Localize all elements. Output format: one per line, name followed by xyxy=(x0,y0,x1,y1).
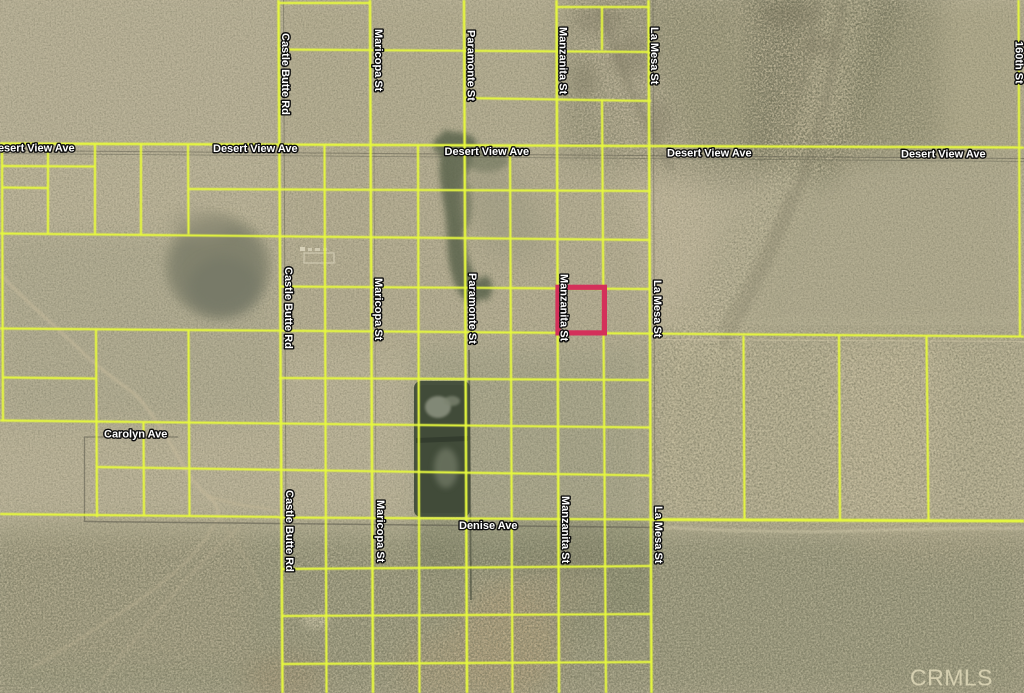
svg-text:Carolyn Ave: Carolyn Ave xyxy=(104,429,167,441)
svg-text:La Mesa St: La Mesa St xyxy=(648,27,660,85)
svg-text:Castle Butte Rd: Castle Butte Rd xyxy=(283,490,295,572)
svg-text:Manzanita St: Manzanita St xyxy=(558,274,570,342)
svg-text:Desert View Ave: Desert View Ave xyxy=(445,146,530,158)
svg-text:Paramonte St: Paramonte St xyxy=(466,273,478,344)
svg-text:CRMLS: CRMLS xyxy=(910,665,993,691)
svg-text:Desert View Ave: Desert View Ave xyxy=(0,143,75,155)
svg-text:Denise Ave: Denise Ave xyxy=(459,520,518,532)
svg-text:La Mesa St: La Mesa St xyxy=(651,280,663,338)
svg-text:Manzanita St: Manzanita St xyxy=(557,27,569,95)
svg-text:Maricopa St: Maricopa St xyxy=(374,500,386,563)
svg-text:Paramonte St: Paramonte St xyxy=(465,30,477,101)
svg-text:160th St: 160th St xyxy=(1013,41,1024,84)
svg-text:La Mesa St: La Mesa St xyxy=(652,506,664,564)
svg-text:Desert View Ave: Desert View Ave xyxy=(667,148,752,160)
svg-text:Maricopa St: Maricopa St xyxy=(372,278,384,341)
svg-text:Desert View Ave: Desert View Ave xyxy=(901,149,986,161)
svg-text:Maricopa St: Maricopa St xyxy=(372,29,384,92)
svg-text:Castle Butte Rd: Castle Butte Rd xyxy=(282,267,294,349)
svg-text:Manzanita St: Manzanita St xyxy=(559,496,571,564)
svg-text:Castle Butte Rd: Castle Butte Rd xyxy=(279,33,291,115)
svg-text:Desert View Ave: Desert View Ave xyxy=(213,143,298,155)
